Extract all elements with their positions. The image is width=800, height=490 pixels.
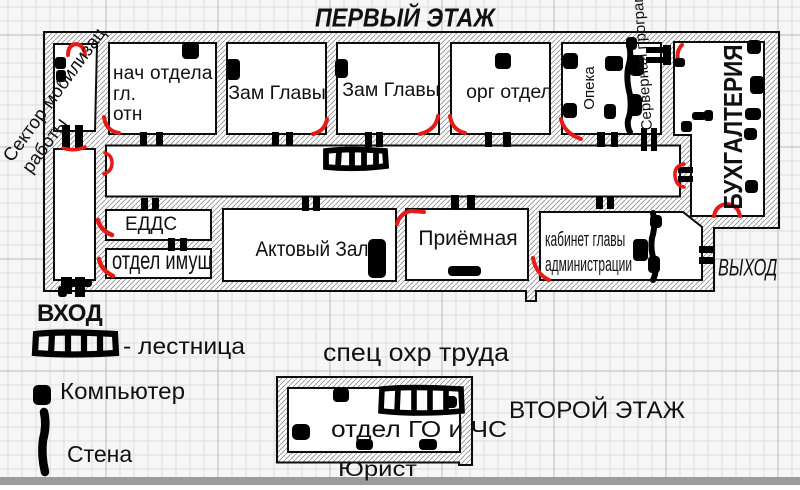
svg-text:отн: отн bbox=[113, 104, 142, 125]
svg-text:администрации: администрации bbox=[545, 254, 632, 276]
svg-text:ВЫХОД: ВЫХОД bbox=[718, 254, 777, 281]
svg-text:отдел ГО и ЧС: отдел ГО и ЧС bbox=[331, 416, 507, 442]
svg-text:орг отдел: орг отдел bbox=[466, 81, 552, 103]
svg-text:ВТОРОЙ ЭТАЖ: ВТОРОЙ ЭТАЖ bbox=[509, 396, 685, 424]
svg-text:Актовый Зал: Актовый Зал bbox=[256, 238, 369, 261]
svg-text:отдел имущ: отдел имущ bbox=[112, 246, 212, 275]
svg-text:Приёмная: Приёмная bbox=[418, 227, 517, 250]
svg-text:Юрист: Юрист bbox=[338, 457, 417, 481]
svg-text:ВХОД: ВХОД bbox=[37, 300, 103, 327]
svg-text:Зам Главы: Зам Главы bbox=[342, 79, 440, 101]
svg-text:нач отдела: нач отдела bbox=[113, 63, 213, 84]
svg-text:БУХГАЛТЕРИЯ: БУХГАЛТЕРИЯ bbox=[718, 45, 748, 210]
svg-text:Опека: Опека bbox=[581, 66, 598, 110]
svg-text:ЕДДС: ЕДДС bbox=[125, 214, 177, 235]
svg-text:Компьютер: Компьютер bbox=[60, 378, 185, 404]
svg-text:кабинет главы: кабинет главы bbox=[545, 229, 625, 251]
svg-text:Стена: Стена bbox=[67, 441, 132, 467]
svg-text:гл.: гл. bbox=[113, 84, 136, 105]
svg-text:ПЕРВЫЙ ЭТАЖ: ПЕРВЫЙ ЭТАЖ bbox=[315, 3, 497, 33]
svg-text:спец охр труда: спец охр труда bbox=[323, 339, 509, 367]
svg-text:- лестница: - лестница bbox=[123, 333, 245, 359]
svg-text:Зам Главы: Зам Главы bbox=[228, 82, 326, 104]
